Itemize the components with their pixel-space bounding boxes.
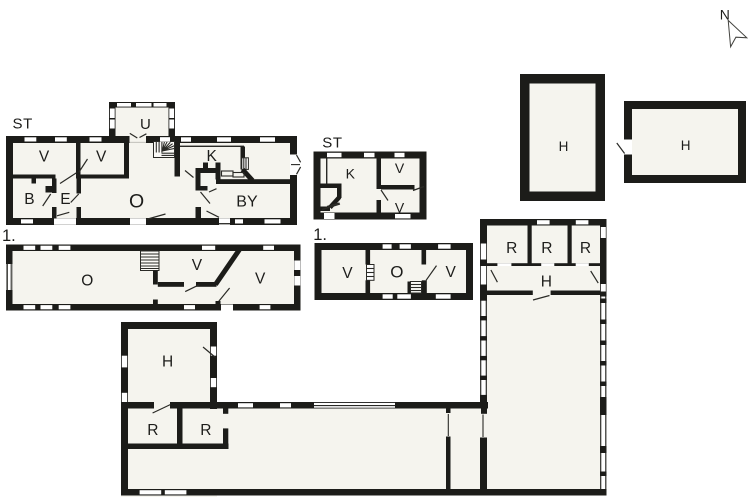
- svg-text:V: V: [39, 148, 50, 165]
- svg-text:B: B: [24, 191, 34, 208]
- svg-text:R: R: [541, 240, 552, 257]
- svg-text:V: V: [96, 148, 107, 165]
- svg-text:1.: 1.: [2, 227, 16, 245]
- svg-text:V: V: [395, 160, 405, 176]
- svg-text:R: R: [506, 240, 517, 257]
- svg-text:V: V: [342, 265, 353, 282]
- svg-text:H: H: [681, 138, 691, 153]
- svg-text:U: U: [140, 116, 151, 133]
- svg-text:H: H: [559, 139, 569, 154]
- svg-text:ST: ST: [13, 116, 33, 133]
- svg-text:N: N: [720, 6, 730, 22]
- svg-text:R: R: [147, 422, 158, 439]
- svg-text:H: H: [541, 274, 552, 291]
- svg-text:ST: ST: [322, 135, 342, 152]
- svg-text:O: O: [390, 262, 403, 281]
- svg-text:H: H: [162, 354, 173, 371]
- svg-text:R: R: [580, 240, 591, 257]
- svg-text:1.: 1.: [313, 226, 327, 244]
- svg-text:V: V: [446, 264, 457, 281]
- svg-text:E: E: [60, 191, 70, 208]
- svg-text:V: V: [192, 257, 203, 274]
- svg-text:V: V: [395, 199, 405, 215]
- svg-text:O: O: [81, 273, 93, 290]
- svg-text:V: V: [255, 270, 266, 287]
- svg-text:O: O: [129, 191, 144, 213]
- svg-text:R: R: [200, 422, 211, 439]
- svg-text:K: K: [346, 166, 356, 182]
- svg-text:K: K: [207, 148, 218, 165]
- svg-text:BY: BY: [236, 193, 258, 210]
